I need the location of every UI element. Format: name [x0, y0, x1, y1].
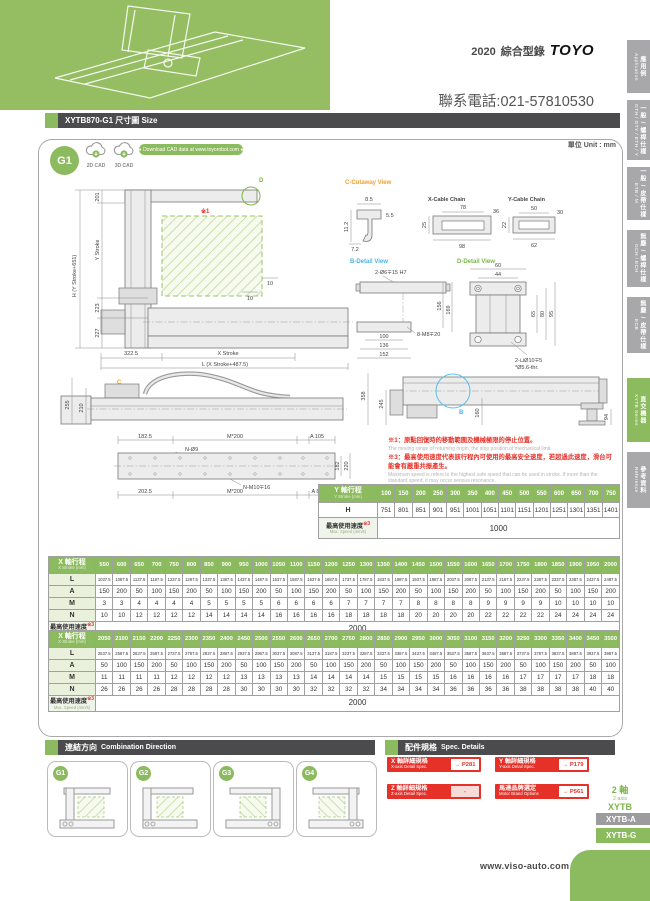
y-cable-chain-drawing: Y-Cable Chain 50 30 22 62 [502, 197, 563, 249]
max-speed-label: 最高使用速度※3Max. Speed (mm/s) [319, 518, 378, 539]
value-cell: 3737.5 [514, 648, 531, 660]
sidebar-tab-etb[interactable]: ETB / M 一般 / 皮帶仕樣 [627, 167, 650, 220]
combo-option-g3[interactable]: G3 [213, 761, 294, 837]
value-cell: 18 [340, 610, 357, 622]
stroke-column-header: 550 [533, 485, 550, 503]
value-cell: 28 [183, 684, 200, 696]
note-3-zh: ※3：最高使用速度代表該行程內可使用的最高安全速度，若超過此速度，滑台可能會有嚴… [388, 454, 618, 472]
value-cell: 7 [340, 598, 357, 610]
value-cell: 14 [340, 672, 357, 684]
tab-label-zh: 直交機器 [639, 396, 645, 424]
catalog-year: 2020 [471, 46, 495, 58]
stroke-column-header: 450 [498, 485, 515, 503]
dim-x-stroke: X Stroke [217, 351, 238, 357]
value-cell: 200 [427, 660, 444, 672]
stroke-column-header: 2600 [287, 631, 304, 648]
dim-1825: 182.5 [138, 434, 152, 440]
value-cell: 1401 [602, 503, 619, 518]
stroke-column-header: 1350 [375, 557, 392, 574]
side-view-drawing: C 255 210 [61, 374, 347, 424]
combo-diagram [218, 778, 288, 832]
front-view-drawing: D ※1 H (Y Stroke+651) 201 Y Stroke 223 2… [72, 178, 353, 370]
page-ref[interactable]: → P561 [559, 786, 587, 797]
stroke-column-header: 200 [412, 485, 429, 503]
value-cell: 4 [183, 598, 200, 610]
value-cell: 50 [270, 586, 287, 598]
dim-169: 169 [446, 305, 452, 314]
value-cell: 6 [287, 598, 304, 610]
green-accent-square [385, 740, 398, 755]
value-cell: 1887.5 [392, 574, 409, 586]
dim-220: 220 [344, 461, 350, 470]
combination-section-bar: 連結方向 Combination Direction [45, 740, 375, 755]
note-3-en: Maximum speed is refers to the highest s… [388, 472, 618, 485]
value-cell: 34 [410, 684, 427, 696]
value-cell: 30 [270, 684, 287, 696]
stroke-column-header: 2650 [305, 631, 322, 648]
x-cable-chain-drawing: X-Cable Chain 78 36 25 98 [422, 197, 499, 250]
value-cell: 200 [287, 660, 304, 672]
value-cell: 200 [392, 586, 409, 598]
spec-link-z-axis[interactable]: Z 軸詳細規格 Z-axis Detail Spec. - [387, 784, 481, 799]
cad-2d-label: 2D CAD [82, 163, 110, 169]
dim-y-stroke: Y Stroke [95, 240, 101, 261]
cad-2d-button[interactable]: 2D CAD [82, 141, 110, 169]
value-cell: 15 [410, 672, 427, 684]
green-accent-square [45, 740, 58, 755]
value-cell: 150 [130, 660, 147, 672]
xchain-title: X-Cable Chain [428, 197, 466, 203]
note-1-en: The moving range of returning origin, th… [388, 446, 618, 453]
value-cell: 11 [96, 672, 113, 684]
value-cell: 8 [427, 598, 444, 610]
value-cell: 100 [183, 660, 200, 672]
value-cell: 13 [270, 672, 287, 684]
value-cell: 1137.5 [130, 574, 147, 586]
dim-227: 227 [95, 328, 101, 337]
value-cell: 36 [462, 684, 479, 696]
value-cell: 200 [322, 586, 339, 598]
hero-line-art [0, 0, 330, 110]
dim-112: 11.2 [344, 222, 350, 232]
value-cell: 1101 [498, 503, 515, 518]
value-cell: 13 [253, 672, 270, 684]
stroke-column-header: 2850 [375, 631, 392, 648]
stroke-column-header: 3000 [427, 631, 444, 648]
value-cell: 50 [375, 660, 392, 672]
row-label: N [49, 610, 96, 622]
callout-b: B [459, 410, 464, 416]
catalog-page: 2020 綜合型錄 TOYO 聯系電話:021-57810530 Applica… [0, 0, 650, 901]
spec-section-bar: 配件規格 Spec. Details [385, 740, 615, 755]
value-cell: 10 [549, 598, 566, 610]
stroke-column-header: 2950 [410, 631, 427, 648]
value-cell: 1937.5 [410, 574, 427, 586]
value-cell: 801 [395, 503, 412, 518]
value-cell: 15 [375, 672, 392, 684]
value-cell: 50 [340, 586, 357, 598]
stroke-column-header: 250 [429, 485, 446, 503]
value-cell: 2987.5 [253, 648, 270, 660]
dim-201: 201 [95, 192, 101, 201]
d-detail-drawing: D-Detail View 60 44 65 80 95 2-⊔Ø10∓5 * [457, 259, 555, 371]
value-cell: 100 [357, 586, 374, 598]
value-cell: 2687.5 [148, 648, 165, 660]
value-cell: 24 [549, 610, 566, 622]
dim-a105: A 105 [310, 434, 324, 440]
value-cell: 16 [322, 610, 339, 622]
value-cell: 2437.5 [584, 574, 601, 586]
stroke-column-header: 600 [550, 485, 567, 503]
stroke-column-header: 2150 [130, 631, 147, 648]
stroke-column-header: 1900 [567, 557, 584, 574]
value-cell: 1251 [550, 503, 567, 518]
value-cell: 50 [549, 586, 566, 598]
combo-option-g4[interactable]: G4 [296, 761, 377, 837]
value-cell: 150 [200, 660, 217, 672]
value-cell: 100 [392, 660, 409, 672]
sidebar-tab-application[interactable]: Application 應用例 [627, 40, 650, 93]
stroke-column-header: 500 [516, 485, 533, 503]
value-cell: 15 [392, 672, 409, 684]
value-cell: 8 [445, 598, 462, 610]
top-nhole: N-Ø9 [185, 447, 198, 453]
value-cell: 14 [200, 610, 217, 622]
value-cell: 12 [165, 610, 182, 622]
value-cell: 150 [514, 586, 531, 598]
page-ref[interactable]: → P281 [451, 759, 479, 770]
stroke-column-header: 1300 [357, 557, 374, 574]
stroke-column-header: 1000 [253, 557, 270, 574]
value-cell: 1351 [585, 503, 602, 518]
value-cell: 3237.5 [340, 648, 357, 660]
sidebar-tab-ecb[interactable]: ECB 無塵 / 皮帶仕樣 [627, 297, 650, 353]
value-cell: 17 [532, 672, 549, 684]
dim-l: L (X Stroke+487.5) [202, 362, 248, 368]
green-accent-square [45, 113, 58, 128]
stroke-column-header: 850 [200, 557, 217, 574]
value-cell: 3037.5 [270, 648, 287, 660]
value-cell: 24 [584, 610, 601, 622]
stroke-column-header: 3050 [445, 631, 462, 648]
stroke-column-header: 2050 [96, 631, 113, 648]
cloud-download-icon [84, 141, 108, 159]
tab-label-en: Reference [632, 467, 637, 493]
row-label: M [49, 598, 96, 610]
value-cell: 3 [96, 598, 113, 610]
value-cell: 100 [287, 586, 304, 598]
value-cell: 36 [497, 684, 514, 696]
stroke-column-header: 3100 [462, 631, 479, 648]
value-cell: 3787.5 [532, 648, 549, 660]
spec-title-en: Spec. Details [441, 744, 485, 751]
value-cell: 3887.5 [567, 648, 584, 660]
dim-95: 95 [549, 311, 555, 317]
value-cell: 1387.5 [218, 574, 235, 586]
value-cell: 100 [532, 660, 549, 672]
value-cell: 1301 [568, 503, 585, 518]
value-cell: 38 [514, 684, 531, 696]
row-label: L [49, 574, 96, 586]
dim-22: 22 [502, 222, 508, 228]
note-1-zh: ※1：原點回復時的移動範圍及機械極限的停止位置。 [388, 437, 618, 446]
spec-link-motor-brand[interactable]: 馬達品牌選定 Motor Brand Options → P561 [495, 784, 589, 799]
value-cell: 14 [357, 672, 374, 684]
value-cell: 30 [287, 684, 304, 696]
value-cell: 17 [549, 672, 566, 684]
value-cell: 12 [183, 610, 200, 622]
value-cell: 7 [375, 598, 392, 610]
value-cell: 2937.5 [235, 648, 252, 660]
value-cell: 2637.5 [130, 648, 147, 660]
value-cell: 10 [567, 598, 584, 610]
value-cell: 3 [113, 598, 130, 610]
tab-label-zh: 無塵 / 螺桿仕樣 [639, 233, 645, 283]
right-view-drawing: B 358 245 160 94 [361, 373, 611, 425]
value-cell: 11 [113, 672, 130, 684]
value-cell: 50 [96, 660, 113, 672]
value-cell: 3637.5 [479, 648, 496, 660]
combination-title-zh: 連結方向 [65, 742, 97, 753]
value-cell: 14 [218, 610, 235, 622]
spec-link-x-axis[interactable]: X 軸詳細規格 X-axis Detail Spec. → P281 [387, 757, 481, 772]
value-cell: 14 [253, 610, 270, 622]
dim-98: 98 [459, 244, 465, 250]
value-cell: 7 [392, 598, 409, 610]
dim-100: 100 [379, 334, 388, 340]
value-cell: 17 [514, 672, 531, 684]
value-cell: 32 [322, 684, 339, 696]
value-cell: 10 [96, 610, 113, 622]
value-cell: 4 [148, 598, 165, 610]
value-cell: 1437.5 [235, 574, 252, 586]
stroke-column-header: 1550 [445, 557, 462, 574]
dim-78: 78 [460, 205, 466, 211]
value-cell: 150 [96, 586, 113, 598]
dim-55: 5.5 [386, 213, 394, 219]
value-cell: 9 [479, 598, 496, 610]
stroke-column-header: 2100 [113, 631, 130, 648]
value-cell: 100 [602, 660, 620, 672]
value-cell: 1287.5 [183, 574, 200, 586]
value-cell: 200 [183, 586, 200, 598]
value-cell: 40 [602, 684, 620, 696]
value-cell: 24 [602, 610, 620, 622]
stroke-column-header: 2200 [148, 631, 165, 648]
cad-3d-label: 3D CAD [110, 163, 138, 169]
spec-link-y-axis[interactable]: Y 軸詳細規格 Y-axis Detail Spec. → P179 [495, 757, 589, 772]
download-cad-link[interactable]: ● Download CAD data at www.toyorobot.com… [139, 144, 243, 155]
stroke-column-header: 3450 [584, 631, 601, 648]
ddetail-hole1: 2-⊔Ø10∓5 [515, 358, 542, 364]
sidebar-tab-xytb-active[interactable]: XYTB Series 直交機器 [627, 378, 650, 442]
value-cell: 16 [445, 672, 462, 684]
value-cell: 50 [235, 660, 252, 672]
value-cell: 12 [200, 672, 217, 684]
value-cell: 1037.5 [96, 574, 113, 586]
dim-65: 65 [531, 311, 537, 317]
dim-152: 152 [379, 352, 388, 358]
value-cell: 14 [305, 672, 322, 684]
tab-label-zh: 應用例 [639, 56, 645, 77]
dim-30: 30 [557, 210, 563, 216]
value-cell: 3387.5 [392, 648, 409, 660]
value-cell: 38 [567, 684, 584, 696]
value-cell: 751 [378, 503, 395, 518]
value-cell: 15 [427, 672, 444, 684]
value-cell: 50 [305, 660, 322, 672]
value-cell: 200 [253, 586, 270, 598]
value-cell: 1237.5 [165, 574, 182, 586]
value-cell: 5 [218, 598, 235, 610]
value-cell: 16 [305, 610, 322, 622]
stroke-column-header: 2000 [602, 557, 620, 574]
value-cell: 2487.5 [602, 574, 620, 586]
value-cell: 11 [130, 672, 147, 684]
value-cell: 100 [218, 586, 235, 598]
value-cell: 2187.5 [497, 574, 514, 586]
row-label: A [49, 660, 96, 672]
stroke-column-header: 300 [447, 485, 464, 503]
combo-option-g2[interactable]: G2 [130, 761, 211, 837]
stroke-column-header: 2300 [183, 631, 200, 648]
tab-xytb-g[interactable]: XYTB-G [596, 828, 650, 843]
cloud-download-icon [112, 141, 136, 159]
value-cell: 3287.5 [357, 648, 374, 660]
value-cell: 18 [392, 610, 409, 622]
value-cell: 34 [427, 684, 444, 696]
value-cell: 200 [567, 660, 584, 672]
value-cell: 200 [357, 660, 374, 672]
value-cell: 13 [287, 672, 304, 684]
value-cell: 6 [270, 598, 287, 610]
value-cell: 150 [165, 586, 182, 598]
stroke-column-header: 400 [481, 485, 498, 503]
value-cell: 9 [497, 598, 514, 610]
value-cell: 150 [235, 586, 252, 598]
stroke-column-header: 900 [218, 557, 235, 574]
value-cell: 100 [567, 586, 584, 598]
dim-160: 160 [475, 408, 481, 417]
stroke-table: Y 軸行程Y Stroke (mm)1001502002503003504004… [318, 484, 620, 539]
stroke-column-header: 750 [165, 557, 182, 574]
value-cell: 22 [479, 610, 496, 622]
value-cell: 3537.5 [445, 648, 462, 660]
max-speed-value: 2000 [96, 696, 620, 712]
stroke-column-header: 1500 [427, 557, 444, 574]
value-cell: 16 [270, 610, 287, 622]
dim-136: 136 [379, 343, 388, 349]
value-cell: 150 [584, 586, 601, 598]
value-cell: 851 [412, 503, 429, 518]
dim-358: 358 [361, 391, 367, 400]
combo-diagram [52, 778, 122, 832]
stroke-column-header: 2800 [357, 631, 374, 648]
sidebar-tab-gth[interactable]: GTH / GTY / ETH / Y 一般 / 螺桿仕樣 [627, 100, 650, 160]
value-cell: 32 [305, 684, 322, 696]
row-label: A [49, 586, 96, 598]
stroke-column-header: 1450 [410, 557, 427, 574]
value-cell: 26 [130, 684, 147, 696]
footnotes: ※1：原點回復時的移動範圍及機械極限的停止位置。 The moving rang… [388, 437, 618, 487]
value-cell: 3137.5 [305, 648, 322, 660]
value-cell: 100 [497, 586, 514, 598]
g2-option-badge: G2 [136, 766, 151, 781]
dim-m200b: M*200 [227, 489, 243, 495]
y-stroke-table: Y 軸行程Y Stroke (mm)1001502002503003504004… [318, 484, 620, 539]
stroke-column-header: 2400 [218, 631, 235, 648]
value-cell: 7 [357, 598, 374, 610]
value-cell: 4 [165, 598, 182, 610]
sidebar-tab-reference[interactable]: Reference 參考資料 [627, 452, 650, 508]
combo-option-g1[interactable]: G1 [47, 761, 128, 837]
value-cell: 3687.5 [497, 648, 514, 660]
value-cell: 1087.5 [113, 574, 130, 586]
dim-36: 36 [493, 209, 499, 215]
value-cell: 13 [235, 672, 252, 684]
value-cell: 28 [200, 684, 217, 696]
value-cell: 150 [410, 660, 427, 672]
page-ref[interactable]: → P179 [559, 759, 587, 770]
value-cell: 50 [200, 586, 217, 598]
b-detail-drawing: B-Detail View 2-Ø6∓15 H7 156 169 8-M8∓20… [350, 259, 452, 358]
value-cell: 1337.5 [200, 574, 217, 586]
stroke-table: X 軸行程X Stroke (mm)5506006507007508008509… [48, 556, 620, 638]
value-cell: 36 [479, 684, 496, 696]
value-cell: 1687.5 [322, 574, 339, 586]
stroke-column-header: 650 [130, 557, 147, 574]
value-cell: 100 [253, 660, 270, 672]
value-cell: 100 [113, 660, 130, 672]
stroke-column-header: 3150 [479, 631, 496, 648]
sidebar-tab-gch[interactable]: GCH / ECH 無塵 / 螺桿仕樣 [627, 230, 650, 287]
cad-3d-button[interactable]: 3D CAD [110, 141, 138, 169]
dim-182: 182 [335, 461, 341, 470]
value-cell: 17 [567, 672, 584, 684]
stroke-column-header: 2700 [322, 631, 339, 648]
tab-xytb-a[interactable]: XYTB-A [596, 813, 650, 825]
value-cell: 2537.5 [96, 648, 113, 660]
value-cell: 20 [462, 610, 479, 622]
footer-url: www.viso-auto.com [480, 861, 569, 871]
stroke-column-header: 100 [378, 485, 395, 503]
value-cell: 2387.5 [567, 574, 584, 586]
stroke-column-header: 3300 [532, 631, 549, 648]
value-cell: 1987.5 [427, 574, 444, 586]
value-cell: 3087.5 [287, 648, 304, 660]
value-cell: 2237.5 [514, 574, 531, 586]
value-cell: 2037.5 [445, 574, 462, 586]
value-cell: 1487.5 [253, 574, 270, 586]
value-cell: 50 [479, 586, 496, 598]
value-cell: 3587.5 [462, 648, 479, 660]
row-label: M [49, 672, 96, 684]
value-cell: 200 [462, 586, 479, 598]
catalog-title: 2020 綜合型錄 TOYO [471, 42, 594, 59]
value-cell: 2737.5 [165, 648, 182, 660]
tab-label-zh: 一般 / 皮帶仕樣 [639, 168, 645, 218]
value-cell: 34 [375, 684, 392, 696]
stroke-column-header: 1150 [305, 557, 322, 574]
combo-diagram [135, 778, 205, 832]
value-cell: 18 [602, 672, 620, 684]
table-axis-label: X 軸行程X Stroke (mm) [49, 631, 96, 648]
value-cell: 20 [410, 610, 427, 622]
value-cell: 16 [287, 610, 304, 622]
note-mark-1: ※1 [201, 207, 210, 215]
g4-option-badge: G4 [302, 766, 317, 781]
value-cell: 3187.5 [322, 648, 339, 660]
